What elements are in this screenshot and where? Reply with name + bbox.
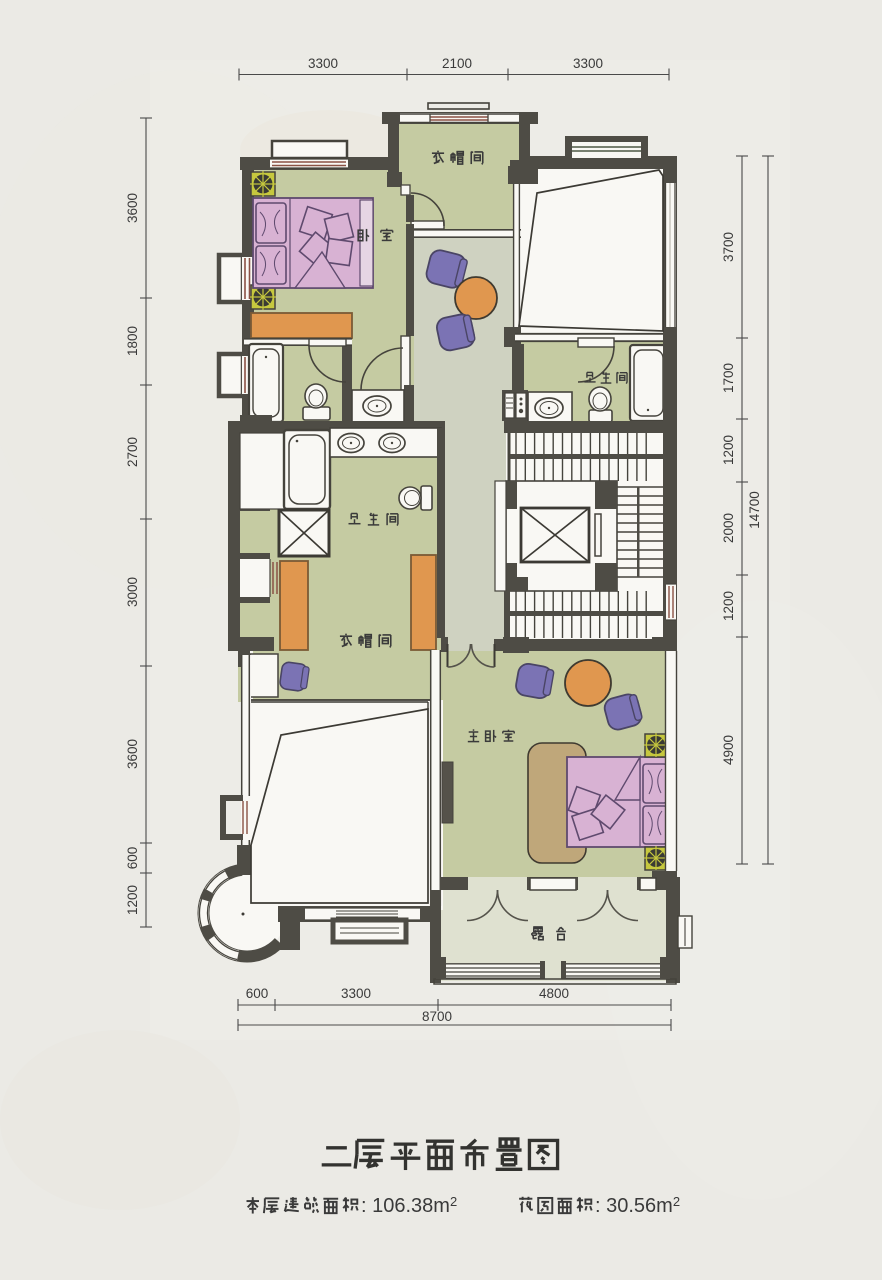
svg-text:3300: 3300 xyxy=(573,56,603,71)
svg-text:4900: 4900 xyxy=(721,735,736,765)
svg-text:2000: 2000 xyxy=(721,513,736,543)
svg-text:3700: 3700 xyxy=(721,232,736,262)
svg-text:8700: 8700 xyxy=(422,1009,452,1024)
svg-text:600: 600 xyxy=(125,847,140,870)
svg-text:1200: 1200 xyxy=(721,435,736,465)
svg-text:3600: 3600 xyxy=(125,193,140,223)
svg-text:3300: 3300 xyxy=(308,56,338,71)
svg-text:2700: 2700 xyxy=(125,437,140,467)
svg-text:600: 600 xyxy=(246,986,269,1001)
svg-text:: 106.38m2: : 106.38m2 xyxy=(361,1194,457,1217)
svg-text:3000: 3000 xyxy=(125,577,140,607)
svg-text:3600: 3600 xyxy=(125,739,140,769)
svg-text:4800: 4800 xyxy=(539,986,569,1001)
svg-text:1200: 1200 xyxy=(125,885,140,915)
svg-text:1700: 1700 xyxy=(721,363,736,393)
svg-text:14700: 14700 xyxy=(747,491,762,529)
svg-text:2100: 2100 xyxy=(442,56,472,71)
svg-text:3300: 3300 xyxy=(341,986,371,1001)
svg-text:1200: 1200 xyxy=(721,591,736,621)
svg-text:: 30.56m2: : 30.56m2 xyxy=(595,1194,680,1217)
svg-text:1800: 1800 xyxy=(125,326,140,356)
